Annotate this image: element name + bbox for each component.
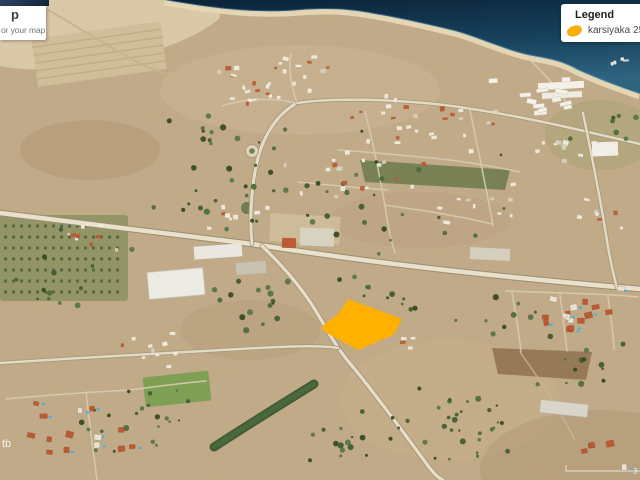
scale-label: 3 bbox=[633, 467, 638, 476]
parcel-swatch-icon bbox=[566, 23, 583, 37]
map-title-panel: p or your map. bbox=[0, 0, 50, 41]
legend-item-label: karsiyaka 2510 m bbox=[588, 25, 640, 36]
legend-title: Legend bbox=[575, 10, 640, 21]
warehouse bbox=[147, 268, 205, 300]
panel-body: p or your map. bbox=[0, 6, 46, 40]
map-viewport[interactable]: tb 3 p or your map. Legend karsiyaka 251… bbox=[0, 0, 640, 480]
map-title-fragment: p bbox=[11, 8, 46, 22]
map-subtitle-fragment: or your map. bbox=[1, 25, 46, 35]
watermark-fragment: tb bbox=[2, 438, 11, 450]
legend-panel: Legend karsiyaka 2510 m bbox=[561, 4, 640, 42]
legend-item-karsiyaka[interactable]: karsiyaka 2510 m bbox=[567, 25, 640, 36]
satellite-map[interactable]: tb 3 bbox=[0, 0, 640, 480]
